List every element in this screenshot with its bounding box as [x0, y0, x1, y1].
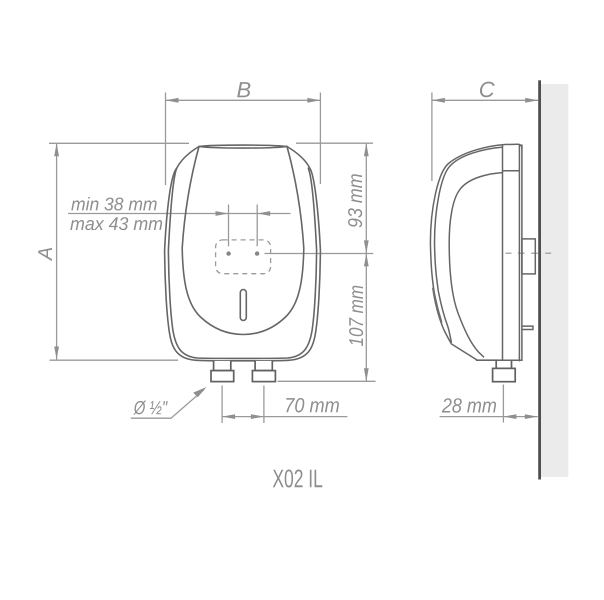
svg-text:X02 IL: X02 IL [272, 465, 323, 493]
svg-text:107 mm: 107 mm [346, 285, 368, 347]
svg-text:min 38 mm: min 38 mm [71, 193, 158, 214]
svg-text:93 mm: 93 mm [345, 173, 367, 228]
svg-text:C: C [479, 77, 495, 102]
svg-text:28 mm: 28 mm [441, 394, 497, 417]
svg-text:A: A [35, 247, 57, 261]
svg-text:Ø ½": Ø ½" [133, 398, 168, 419]
svg-text:max 43 mm: max 43 mm [70, 213, 163, 234]
svg-text:70 mm: 70 mm [284, 394, 340, 417]
svg-text:B: B [236, 77, 251, 102]
